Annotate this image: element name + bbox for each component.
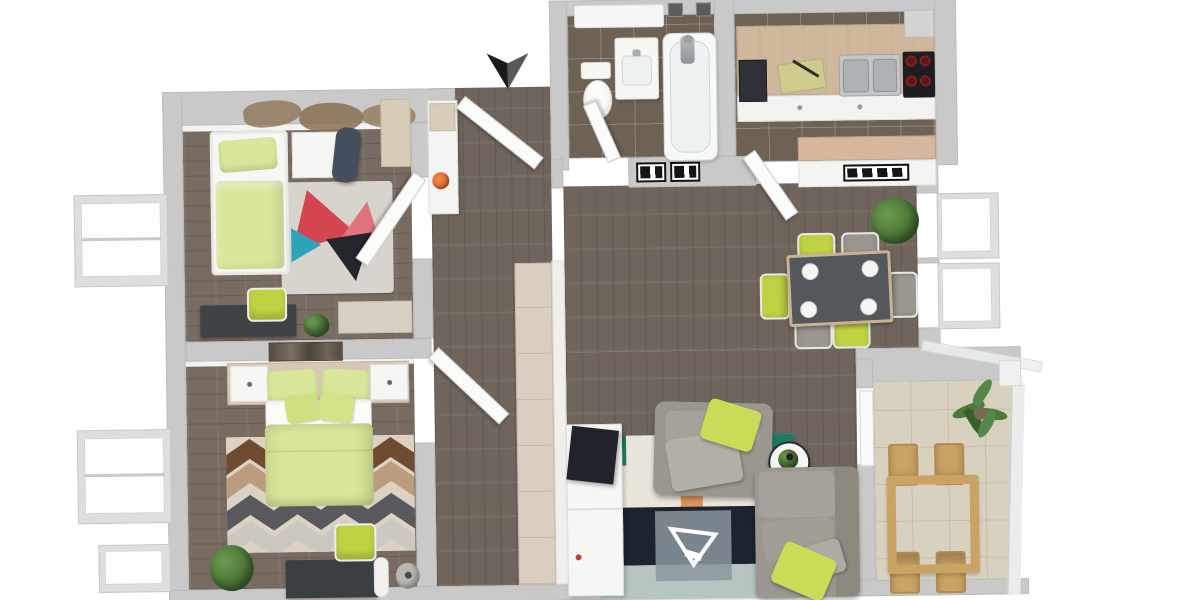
single-bed-pillow: [218, 137, 278, 174]
entrance-arrow-icon: [485, 51, 532, 92]
double-bed-cushion-right: [318, 392, 355, 424]
peninsula-counter: [798, 135, 936, 161]
toilet-tank: [581, 62, 611, 79]
double-bed-cushion-left: [283, 391, 321, 424]
palm-plant: [951, 384, 1008, 443]
radiator: [636, 162, 666, 182]
bathroom-left-wall: [549, 0, 569, 170]
cabinet-handle: [857, 104, 862, 109]
wall-art: [269, 342, 343, 362]
floorplan: [0, 0, 1200, 600]
nightstand-handle: [247, 382, 252, 387]
sofa-back-right: [834, 466, 860, 596]
plate: [802, 263, 819, 280]
wall-vent-icon: [668, 3, 683, 17]
dining-chair-lime: [760, 273, 791, 319]
bedroom-small-right-wall-b: [412, 258, 433, 338]
faucet-icon: [633, 49, 641, 56]
side-table-plant-center: [786, 453, 793, 460]
bedroom-small-desk-chair: [247, 287, 287, 322]
sink-bowl-left: [843, 59, 869, 92]
sink-bowl-right: [873, 59, 897, 92]
bedroom-master-window-small: [104, 550, 162, 585]
dining-window: [941, 198, 992, 253]
double-bed-duvet: [265, 423, 374, 506]
vanity-sink: [622, 55, 652, 85]
bathroom-bottom-wall-left: [551, 159, 563, 189]
bedroom-small-sideboard: [338, 301, 412, 334]
palm-pot: [974, 407, 987, 420]
hall-closet: [514, 263, 555, 585]
bedroom-master-right-wall: [415, 442, 437, 586]
waste-bin-center: [405, 572, 412, 579]
living-balcony-wall-a: [856, 358, 873, 388]
radiator: [670, 162, 700, 182]
shower-head-icon: [683, 35, 692, 44]
plate: [861, 260, 878, 277]
outdoor-table: [886, 475, 979, 574]
nightstand-handle: [387, 380, 392, 385]
rug-triangle-logo: [663, 516, 724, 573]
paper-roll-lamp: [374, 557, 390, 597]
living-balcony-wall-b: [857, 464, 876, 580]
plate: [860, 298, 877, 315]
kitchen-right-wall: [934, 0, 958, 165]
sideboard-red-dot: [576, 554, 582, 560]
balcony-corner-post: [999, 360, 1021, 386]
burner: [920, 55, 931, 66]
hall-console-top: [429, 103, 455, 131]
oven: [739, 60, 768, 102]
single-bed-duvet: [215, 180, 284, 269]
wall-vent-icon: [696, 2, 711, 16]
balcony-door-panel: [859, 390, 874, 466]
tv: [566, 426, 619, 485]
balcony-railing-right: [1006, 382, 1024, 594]
dresser: [380, 99, 411, 167]
dining-right-wall-b: [917, 257, 939, 263]
sofa-chaise-cushion: [758, 471, 835, 518]
orange-bowl: [432, 172, 449, 189]
entrance-arrow-svg: [485, 51, 532, 92]
cabinet-handle: [797, 105, 802, 110]
range-hood: [904, 9, 934, 37]
radiator: [843, 164, 909, 182]
bedroom-master-desk-chair: [334, 523, 377, 562]
burner: [920, 75, 931, 86]
bathroom-mirror: [574, 4, 664, 28]
rug-triangle-logo-svg: [663, 516, 724, 573]
bedroom-master-desk: [286, 559, 379, 598]
dining-window: [942, 268, 993, 323]
floorplan-stage: [0, 0, 1200, 600]
plate: [800, 301, 817, 318]
